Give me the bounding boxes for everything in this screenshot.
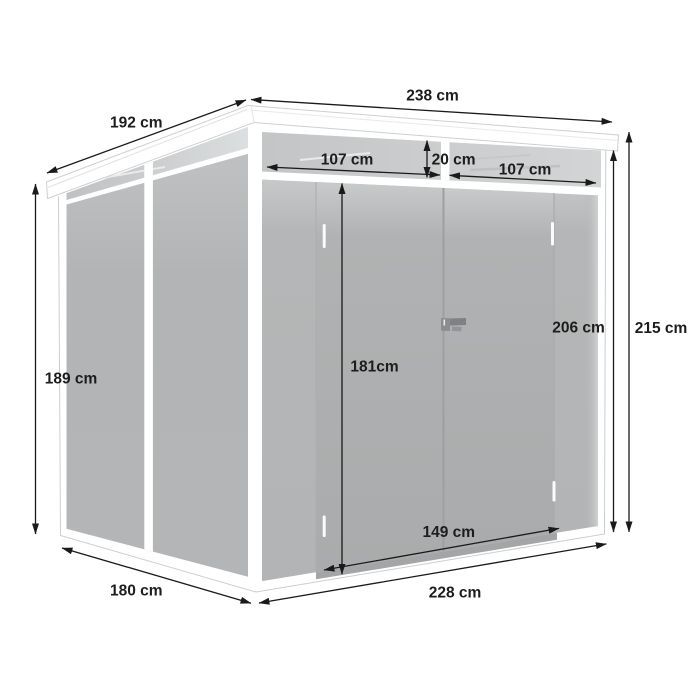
svg-text:107 cm: 107 cm — [321, 152, 374, 169]
svg-text:20 cm: 20 cm — [432, 152, 476, 169]
svg-text:181cm: 181cm — [350, 358, 398, 375]
svg-text:206 cm: 206 cm — [552, 319, 605, 336]
svg-text:180 cm: 180 cm — [110, 583, 163, 600]
svg-text:107 cm: 107 cm — [499, 162, 552, 179]
svg-text:215 cm: 215 cm — [635, 320, 688, 337]
svg-text:149 cm: 149 cm — [423, 524, 476, 541]
svg-text:189 cm: 189 cm — [45, 371, 98, 388]
svg-text:228 cm: 228 cm — [429, 584, 482, 601]
svg-text:238 cm: 238 cm — [406, 87, 459, 104]
svg-text:192 cm: 192 cm — [110, 115, 163, 132]
